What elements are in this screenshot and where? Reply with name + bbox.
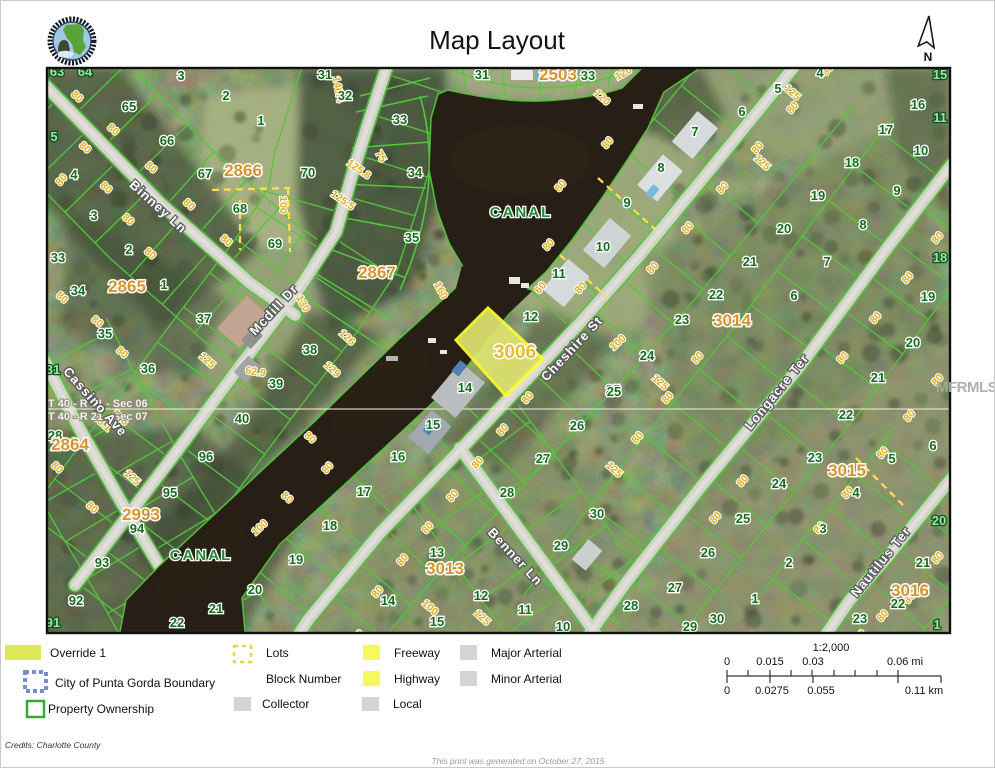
svg-text:16: 16 [391, 449, 405, 464]
svg-text:9: 9 [893, 183, 900, 198]
svg-text:2: 2 [785, 555, 792, 570]
svg-text:3013: 3013 [426, 559, 464, 578]
svg-text:N: N [924, 50, 933, 64]
svg-text:21: 21 [871, 370, 885, 385]
svg-text:11: 11 [518, 602, 532, 617]
svg-text:35: 35 [98, 326, 112, 341]
svg-text:2864: 2864 [51, 435, 89, 454]
svg-text:Map Layout: Map Layout [429, 25, 566, 55]
svg-text:0.055: 0.055 [807, 685, 835, 697]
svg-text:37: 37 [197, 311, 211, 326]
svg-text:1: 1 [160, 277, 167, 292]
svg-text:2: 2 [125, 242, 132, 257]
svg-text:21: 21 [916, 555, 930, 570]
svg-text:10: 10 [556, 619, 570, 634]
svg-text:29: 29 [683, 619, 697, 634]
svg-text:7: 7 [691, 124, 698, 139]
svg-text:2867: 2867 [358, 263, 396, 282]
svg-text:CANAL: CANAL [490, 204, 553, 221]
svg-text:25: 25 [736, 511, 750, 526]
svg-text:14: 14 [458, 380, 473, 395]
svg-text:14: 14 [381, 593, 396, 608]
svg-text:19: 19 [289, 552, 303, 567]
svg-text:65: 65 [122, 99, 136, 114]
svg-text:20: 20 [932, 513, 946, 528]
svg-text:28: 28 [500, 485, 514, 500]
svg-text:95: 95 [163, 485, 177, 500]
svg-text:1: 1 [933, 617, 940, 632]
svg-text:CANAL: CANAL [170, 547, 233, 564]
svg-text:100: 100 [277, 196, 289, 214]
svg-text:0: 0 [724, 685, 730, 697]
svg-text:21: 21 [743, 254, 757, 269]
svg-text:69: 69 [268, 236, 282, 251]
svg-text:36: 36 [141, 361, 155, 376]
svg-text:15: 15 [933, 67, 947, 82]
svg-text:27: 27 [536, 451, 550, 466]
svg-text:1:2,000: 1:2,000 [813, 642, 850, 654]
svg-text:5: 5 [888, 451, 895, 466]
svg-text:22: 22 [709, 287, 723, 302]
svg-text:Credits: Charlotte County: Credits: Charlotte County [5, 740, 101, 750]
svg-text:22: 22 [839, 407, 853, 422]
svg-text:26: 26 [570, 418, 584, 433]
svg-text:Highway: Highway [394, 672, 440, 686]
svg-text:32: 32 [338, 88, 352, 103]
svg-text:28: 28 [624, 598, 638, 613]
svg-text:4: 4 [852, 485, 860, 500]
svg-text:8: 8 [657, 160, 664, 175]
svg-text:0: 0 [724, 656, 730, 668]
svg-text:13: 13 [430, 545, 444, 560]
svg-text:23: 23 [853, 611, 867, 626]
svg-text:18: 18 [845, 155, 859, 170]
svg-text:2: 2 [222, 88, 229, 103]
svg-text:1: 1 [751, 591, 758, 606]
svg-text:This print was generated on Oc: This print was generated on October 27, … [432, 756, 605, 766]
svg-text:19: 19 [921, 289, 935, 304]
svg-text:Freeway: Freeway [394, 646, 440, 660]
svg-text:City of Punta Gorda Boundary: City of Punta Gorda Boundary [55, 676, 215, 690]
svg-text:0.015: 0.015 [756, 656, 784, 668]
svg-text:34: 34 [71, 283, 86, 298]
svg-text:19: 19 [811, 188, 825, 203]
svg-text:5: 5 [774, 81, 781, 96]
svg-text:Local: Local [393, 697, 422, 711]
svg-text:23: 23 [675, 312, 689, 327]
svg-text:3: 3 [177, 68, 184, 83]
svg-text:30: 30 [590, 506, 604, 521]
svg-text:23: 23 [808, 450, 822, 465]
svg-text:39: 39 [269, 376, 283, 391]
svg-text:20: 20 [906, 335, 920, 350]
svg-text:17: 17 [357, 484, 371, 499]
svg-text:6: 6 [738, 104, 745, 119]
svg-text:29: 29 [554, 538, 568, 553]
svg-text:15: 15 [430, 614, 444, 629]
svg-text:3015: 3015 [828, 461, 866, 480]
svg-text:27: 27 [668, 580, 682, 595]
svg-text:92: 92 [69, 593, 83, 608]
svg-text:67: 67 [198, 166, 212, 181]
svg-text:9: 9 [623, 195, 630, 210]
svg-text:2993: 2993 [122, 505, 160, 524]
svg-text:12: 12 [524, 309, 538, 324]
svg-text:26: 26 [701, 545, 715, 560]
svg-text:21: 21 [209, 601, 223, 616]
svg-text:7: 7 [823, 254, 830, 269]
svg-text:MFRMLS: MFRMLS [936, 379, 995, 396]
svg-text:25: 25 [607, 384, 621, 399]
svg-text:22: 22 [170, 615, 184, 630]
svg-text:20: 20 [777, 221, 791, 236]
svg-text:18: 18 [933, 250, 947, 265]
svg-text:33: 33 [581, 68, 595, 83]
svg-text:11: 11 [552, 266, 566, 281]
svg-text:34: 34 [408, 165, 423, 180]
svg-text:Minor Arterial: Minor Arterial [491, 672, 562, 686]
svg-text:93: 93 [95, 555, 109, 570]
svg-text:Property Ownership: Property Ownership [48, 702, 154, 716]
svg-text:40: 40 [235, 411, 249, 426]
svg-text:0.03: 0.03 [802, 656, 823, 668]
svg-text:96: 96 [199, 449, 213, 464]
svg-text:0.0275: 0.0275 [755, 685, 789, 697]
svg-text:3014: 3014 [713, 311, 751, 330]
svg-text:Lots: Lots [266, 646, 289, 660]
svg-text:20: 20 [248, 582, 262, 597]
svg-text:18: 18 [323, 518, 337, 533]
svg-text:33: 33 [393, 112, 407, 127]
svg-text:8: 8 [859, 217, 866, 232]
svg-text:Major Arterial: Major Arterial [491, 646, 562, 660]
svg-text:2866: 2866 [224, 161, 262, 180]
svg-text:16: 16 [911, 97, 925, 112]
svg-text:15: 15 [426, 417, 440, 432]
svg-text:31: 31 [475, 67, 489, 82]
svg-text:66: 66 [160, 133, 174, 148]
svg-text:3: 3 [90, 208, 97, 223]
svg-text:Override 1: Override 1 [50, 646, 106, 660]
svg-text:38: 38 [303, 342, 317, 357]
svg-text:70: 70 [301, 165, 315, 180]
svg-text:Collector: Collector [262, 697, 309, 711]
svg-text:68: 68 [233, 201, 247, 216]
svg-text:10: 10 [596, 239, 610, 254]
svg-text:Block Number: Block Number [266, 672, 341, 686]
svg-text:5: 5 [50, 129, 57, 144]
svg-text:35: 35 [405, 230, 419, 245]
svg-text:3006: 3006 [494, 342, 536, 363]
svg-text:24: 24 [640, 348, 655, 363]
svg-text:4: 4 [70, 167, 78, 182]
svg-text:6: 6 [929, 438, 936, 453]
svg-text:30: 30 [710, 611, 724, 626]
svg-text:3: 3 [819, 521, 826, 536]
svg-text:17: 17 [879, 122, 893, 137]
svg-text:24: 24 [772, 476, 787, 491]
svg-text:12: 12 [474, 588, 488, 603]
svg-text:0.11 km: 0.11 km [905, 685, 943, 697]
svg-text:11: 11 [933, 110, 947, 125]
svg-text:0.06 mi: 0.06 mi [887, 656, 923, 668]
svg-text:3016: 3016 [891, 581, 929, 600]
svg-text:1: 1 [257, 113, 264, 128]
svg-text:31: 31 [318, 67, 332, 82]
svg-text:6: 6 [790, 288, 797, 303]
svg-text:2865: 2865 [108, 277, 146, 296]
svg-text:10: 10 [914, 143, 928, 158]
svg-text:33: 33 [51, 250, 65, 265]
